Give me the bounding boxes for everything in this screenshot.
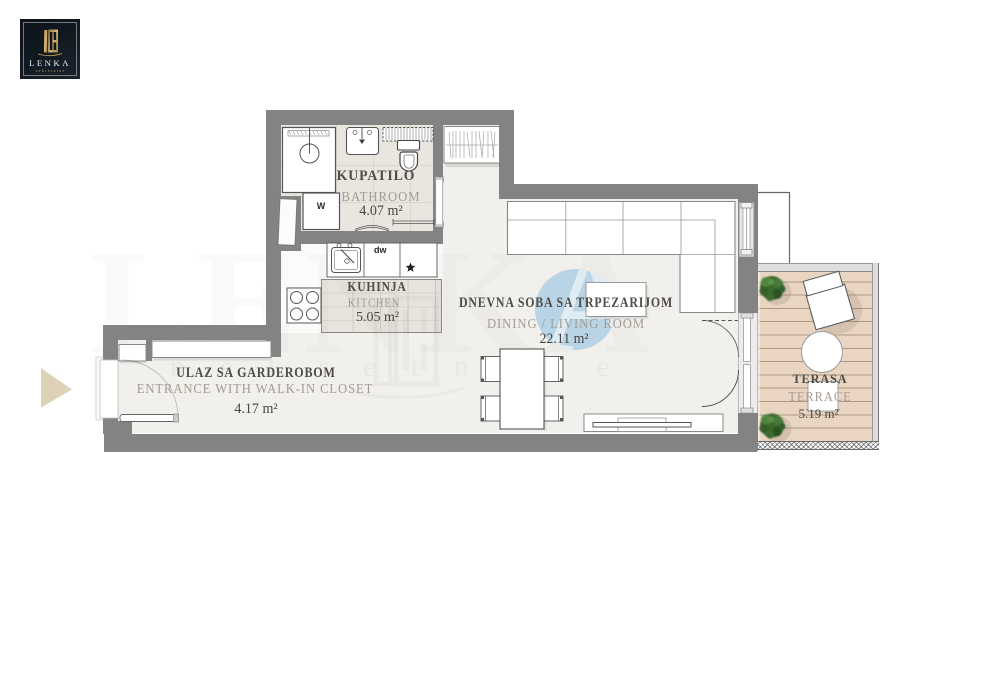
svg-text:dw: dw [374, 245, 387, 255]
